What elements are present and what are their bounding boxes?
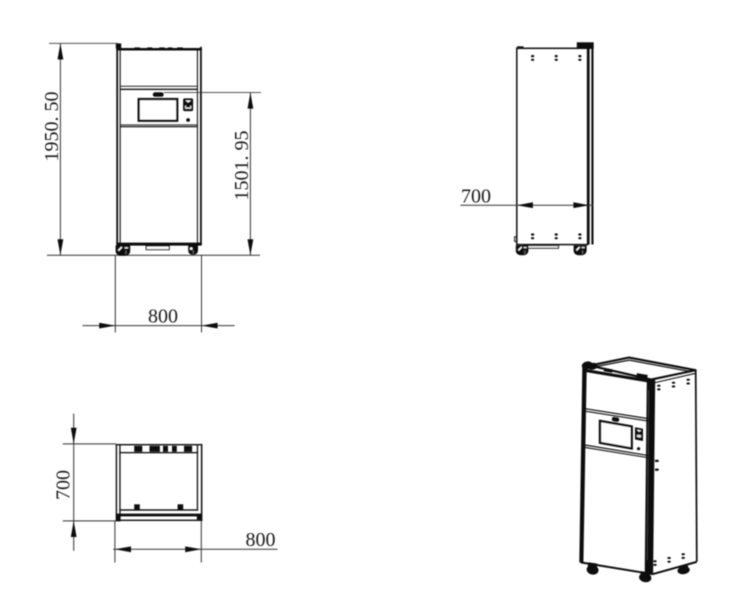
svg-text:700: 700 <box>461 185 491 207</box>
svg-text:800: 800 <box>246 529 276 551</box>
svg-text:700: 700 <box>53 470 75 500</box>
svg-text:800: 800 <box>148 306 178 328</box>
svg-text:1950. 50: 1950. 50 <box>41 92 63 162</box>
svg-text:1501. 95: 1501. 95 <box>231 131 253 201</box>
